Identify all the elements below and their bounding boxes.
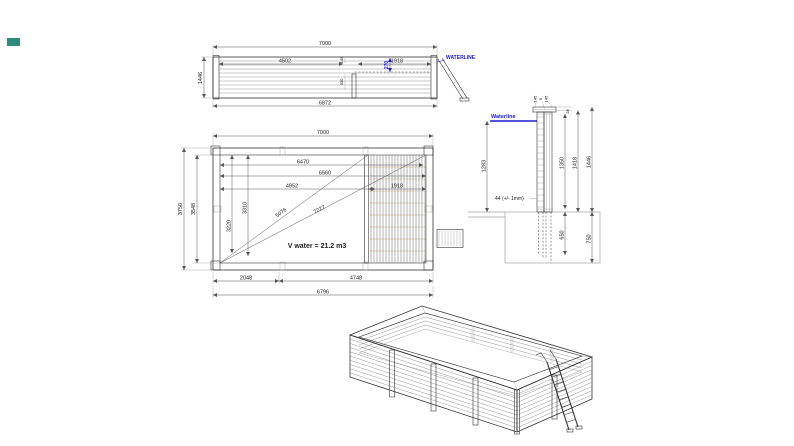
buried-wall-dashed	[539, 212, 552, 263]
mid-post	[352, 74, 356, 98]
dim-diagonal-a: 5076	[275, 207, 288, 219]
dim-overall-length: 7000	[319, 41, 331, 47]
dim-cap-gap: 5	[538, 97, 543, 100]
dim-inner-height: 1350	[560, 157, 566, 169]
dim-rim-height: 28	[565, 109, 570, 114]
deck-slat-grid	[369, 155, 427, 263]
dim-waterline-drop: 270	[384, 61, 390, 70]
waterline-label: WATERLINE	[446, 55, 475, 61]
corner-post	[424, 146, 433, 155]
teal-marker	[7, 38, 20, 46]
section-ground	[468, 212, 600, 263]
dim-inner-length-c: 4952	[286, 184, 298, 190]
dim-right-segment: 1918	[391, 59, 403, 65]
dim-inner-length-a: 6470	[297, 160, 309, 166]
dim-bottom-a: 2048	[240, 276, 252, 282]
plan-ladder	[437, 230, 463, 248]
section-wall	[490, 107, 556, 263]
deck-partition-wall	[365, 155, 369, 263]
dim-overall-length: 7000	[317, 130, 329, 136]
wall-batten	[552, 375, 557, 419]
corner-post	[424, 261, 433, 270]
dim-bottom-b: 4748	[350, 276, 362, 282]
dim-detail-mid: 330	[339, 78, 344, 85]
dim-cap-front: 145	[533, 95, 538, 102]
pool-floor	[359, 329, 582, 396]
dim-water-height: 1283	[482, 160, 488, 172]
side-elevation-view: 7000 1446 6872 4502 1918 270 145 330 WAT…	[175, 28, 475, 113]
plan-pool-frame	[211, 146, 463, 270]
corner-post	[211, 261, 220, 270]
dim-buried-inner: 650	[560, 230, 566, 239]
dim-buried-outer: 750	[587, 234, 593, 243]
dim-diagonal-b: 7227	[313, 205, 327, 216]
dim-width-b: 3220	[227, 220, 233, 232]
dim-width-a: 3310	[243, 202, 249, 214]
dim-overall-width: 3750	[178, 203, 184, 215]
dim-detail-top: 145	[339, 56, 344, 63]
top-plan-view: 7000 3750 3548 6470 6560 4952 5076 7227 …	[170, 118, 480, 310]
dim-deck-length: 1918	[391, 184, 403, 190]
waterline-label: Waterline	[491, 114, 516, 120]
dim-inner-length-b: 6560	[319, 171, 331, 177]
isometric-3d-view	[325, 295, 625, 445]
dim-inner-width: 3548	[191, 203, 197, 215]
iso-pool	[350, 306, 592, 434]
corner-post	[211, 146, 220, 155]
water-volume-label: V water = 21.2 m3	[288, 243, 347, 250]
right-end-post	[431, 56, 437, 100]
technical-drawing-sheet: 7000 1446 6872 4502 1918 270 145 330 WAT…	[0, 0, 794, 446]
dim-total-height: 1446	[587, 156, 593, 168]
dim-left-segment: 4502	[279, 59, 291, 65]
rim-inner	[359, 313, 582, 382]
plank-thickness-note: 44 (+/- 1mm)	[495, 196, 524, 202]
dim-base-length: 6872	[319, 101, 331, 107]
dim-wall-height: 1418	[573, 157, 579, 169]
dim-height: 1446	[198, 72, 204, 84]
cross-section-view: Waterline 145 5 145 28 1350 1418 1446 12…	[465, 78, 620, 273]
left-end-post	[213, 56, 219, 100]
